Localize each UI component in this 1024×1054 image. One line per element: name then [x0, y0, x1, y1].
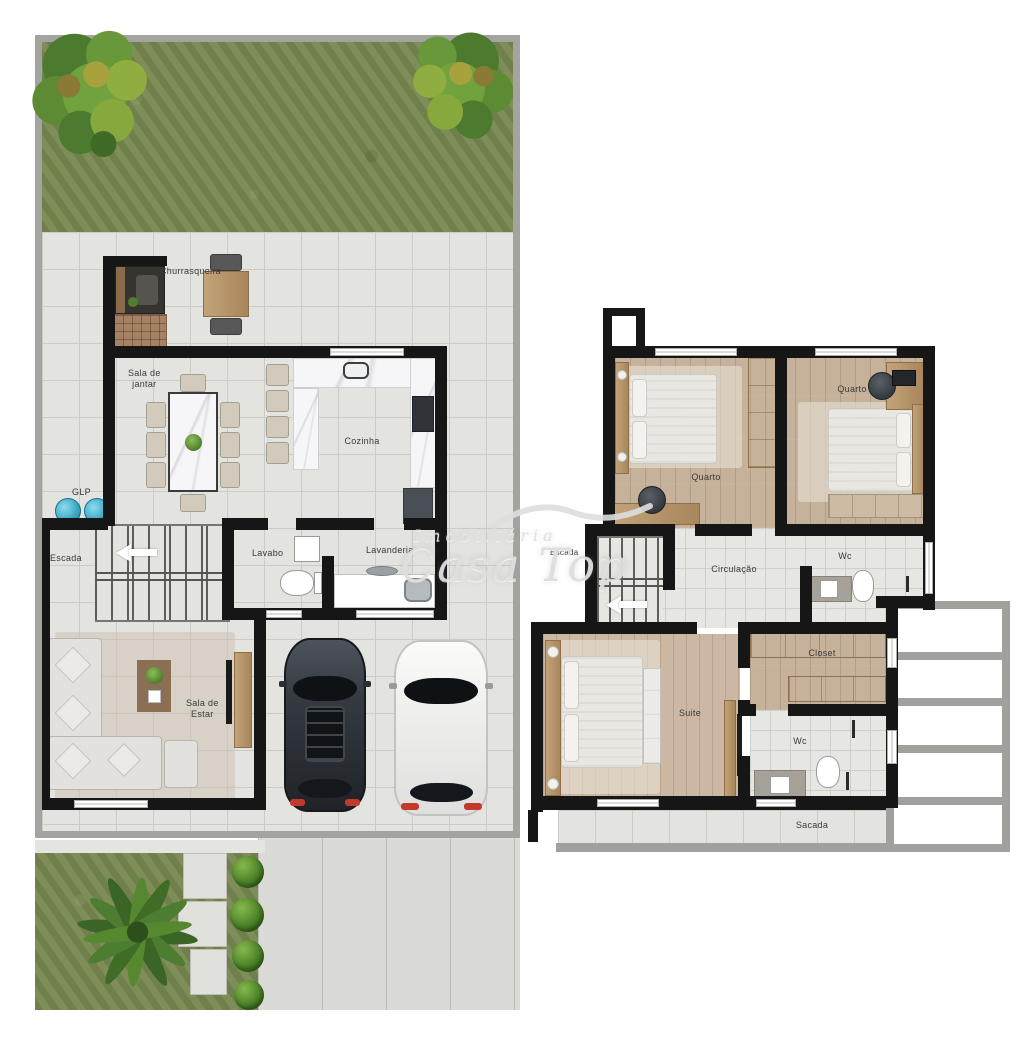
bed-blanket: [656, 374, 684, 464]
shower-head: [846, 772, 849, 790]
wc-sink: [820, 580, 838, 598]
room-label-sala-de-estar: Sala de Estar: [186, 698, 219, 720]
bush: [230, 898, 264, 932]
room-label-sacada: Sacada: [796, 820, 828, 831]
wc-window: [887, 730, 897, 764]
suite-headboard: [545, 640, 561, 796]
pillow: [564, 661, 579, 709]
bush: [232, 940, 264, 972]
shower-head: [852, 720, 855, 738]
driveway: [258, 838, 520, 1010]
window: [356, 610, 434, 618]
watermark-brand: Casa Top: [400, 538, 629, 592]
bed-bench: [643, 668, 661, 764]
pillow: [896, 452, 911, 487]
laptop: [892, 370, 916, 386]
stairs-direction-arrow: [116, 544, 160, 562]
house-wall: [738, 634, 750, 668]
kitchen-window: [330, 348, 404, 356]
bedroom-window: [815, 348, 897, 356]
pergola-roof: [886, 601, 1010, 852]
closet-window: [887, 638, 897, 668]
room-label-wc-bottom: Wc: [793, 736, 807, 747]
bed-blanket: [850, 408, 878, 492]
house-wall: [663, 524, 675, 590]
room-label-churrasqueira: Churrasqueira: [160, 266, 221, 277]
headboard-knob: [617, 370, 627, 380]
house-wall: [738, 622, 886, 634]
room-label-sala-de-jantar: Sala de jantar: [128, 368, 161, 390]
room-label-cozinha: Cozinha: [344, 436, 379, 447]
wardrobe: [748, 356, 778, 468]
nightstand-lamp: [547, 646, 559, 658]
suite-blanket: [581, 656, 642, 768]
balcony-wall: [528, 810, 538, 842]
room-label-escada: Escada: [50, 553, 82, 564]
bush: [232, 856, 264, 888]
house-wall: [886, 596, 898, 808]
sidewalk-strip: [35, 840, 265, 853]
house-wall: [531, 796, 886, 810]
house-wall: [531, 622, 543, 812]
house-wall: [800, 566, 812, 624]
room-label-suite: Suite: [679, 708, 701, 719]
balcony-door: [597, 799, 659, 807]
closet-wardrobe: [788, 676, 886, 702]
bedroom-window: [655, 348, 737, 356]
room-label-lavabo: Lavabo: [252, 548, 283, 559]
house-wall: [738, 704, 756, 716]
nightstand-lamp: [547, 778, 559, 790]
duct-shaft-opening: [612, 316, 636, 346]
tv-rack: [724, 700, 736, 798]
house-wall: [788, 704, 886, 716]
watermark: Imobiliária Casa Top: [392, 496, 662, 592]
room-label-circulacao: Circulação: [711, 564, 757, 575]
palm-plant-icon: [52, 856, 217, 1008]
headboard-knob: [617, 452, 627, 462]
house-wall: [695, 524, 752, 536]
window: [74, 800, 148, 808]
balcony-floor: [558, 810, 886, 843]
house-wall: [876, 596, 935, 608]
house-wall: [775, 524, 935, 536]
toilet: [816, 756, 840, 788]
bed-bench: [828, 494, 924, 518]
shower-head: [906, 576, 909, 592]
toilet: [852, 570, 874, 602]
window: [756, 799, 796, 807]
room-label-quarto-left: Quarto: [691, 472, 720, 483]
label-glp: GLP: [72, 487, 91, 498]
wc-sink: [770, 776, 790, 794]
house-wall: [531, 622, 697, 634]
tree-icon: [392, 30, 524, 158]
bush: [234, 980, 264, 1010]
room-label-closet: Closet: [808, 648, 835, 659]
pillow: [632, 379, 647, 417]
room-label-wc-top: Wc: [838, 551, 852, 562]
floor-plan-image: Churrasqueira Sala de jantar Co: [0, 0, 1024, 1054]
pillow: [564, 714, 579, 762]
stairs-direction-arrow: [606, 596, 650, 614]
pillow: [896, 413, 911, 448]
tree-icon: [28, 28, 173, 173]
bedroom-divider-wall: [775, 358, 787, 528]
window: [266, 610, 302, 618]
room-label-quarto-right: Quarto: [837, 384, 866, 395]
wc-window: [925, 542, 933, 594]
pillow: [632, 421, 647, 459]
